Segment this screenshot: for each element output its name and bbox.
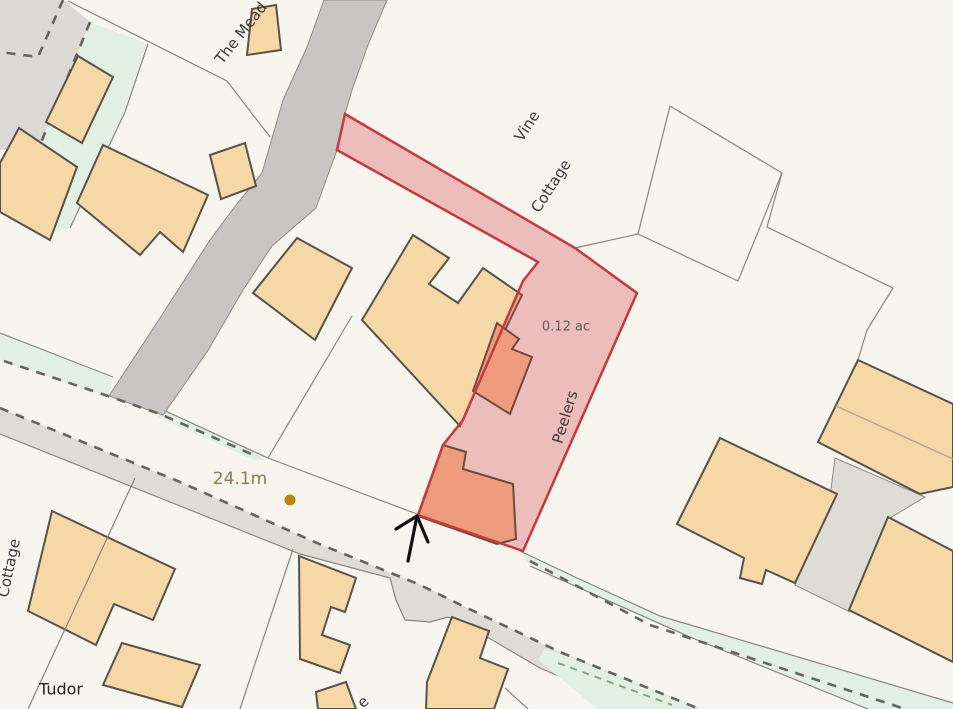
parcel-outline bbox=[638, 106, 782, 281]
boundary-line bbox=[575, 234, 638, 248]
building bbox=[299, 556, 356, 673]
building bbox=[253, 238, 352, 340]
parcel-map[interactable]: The Mead Vine Cottage 0.12 ac Peelers 24… bbox=[0, 0, 953, 709]
building bbox=[77, 145, 208, 255]
boundary-line bbox=[505, 688, 528, 709]
building bbox=[28, 511, 175, 645]
parcel-area-label: 0.12 ac bbox=[542, 320, 590, 335]
label-tudor: Tudor bbox=[39, 680, 83, 699]
boundary-line bbox=[767, 173, 893, 360]
pointer-arrow-icon bbox=[396, 516, 428, 561]
map-canvas bbox=[0, 0, 953, 709]
benchmark-dot bbox=[285, 495, 296, 506]
benchmark-label: 24.1m bbox=[213, 469, 267, 489]
road-verge bbox=[158, 408, 268, 461]
building bbox=[316, 682, 356, 709]
road-verge bbox=[0, 333, 113, 396]
building bbox=[103, 643, 200, 707]
boundary-line bbox=[240, 549, 293, 709]
